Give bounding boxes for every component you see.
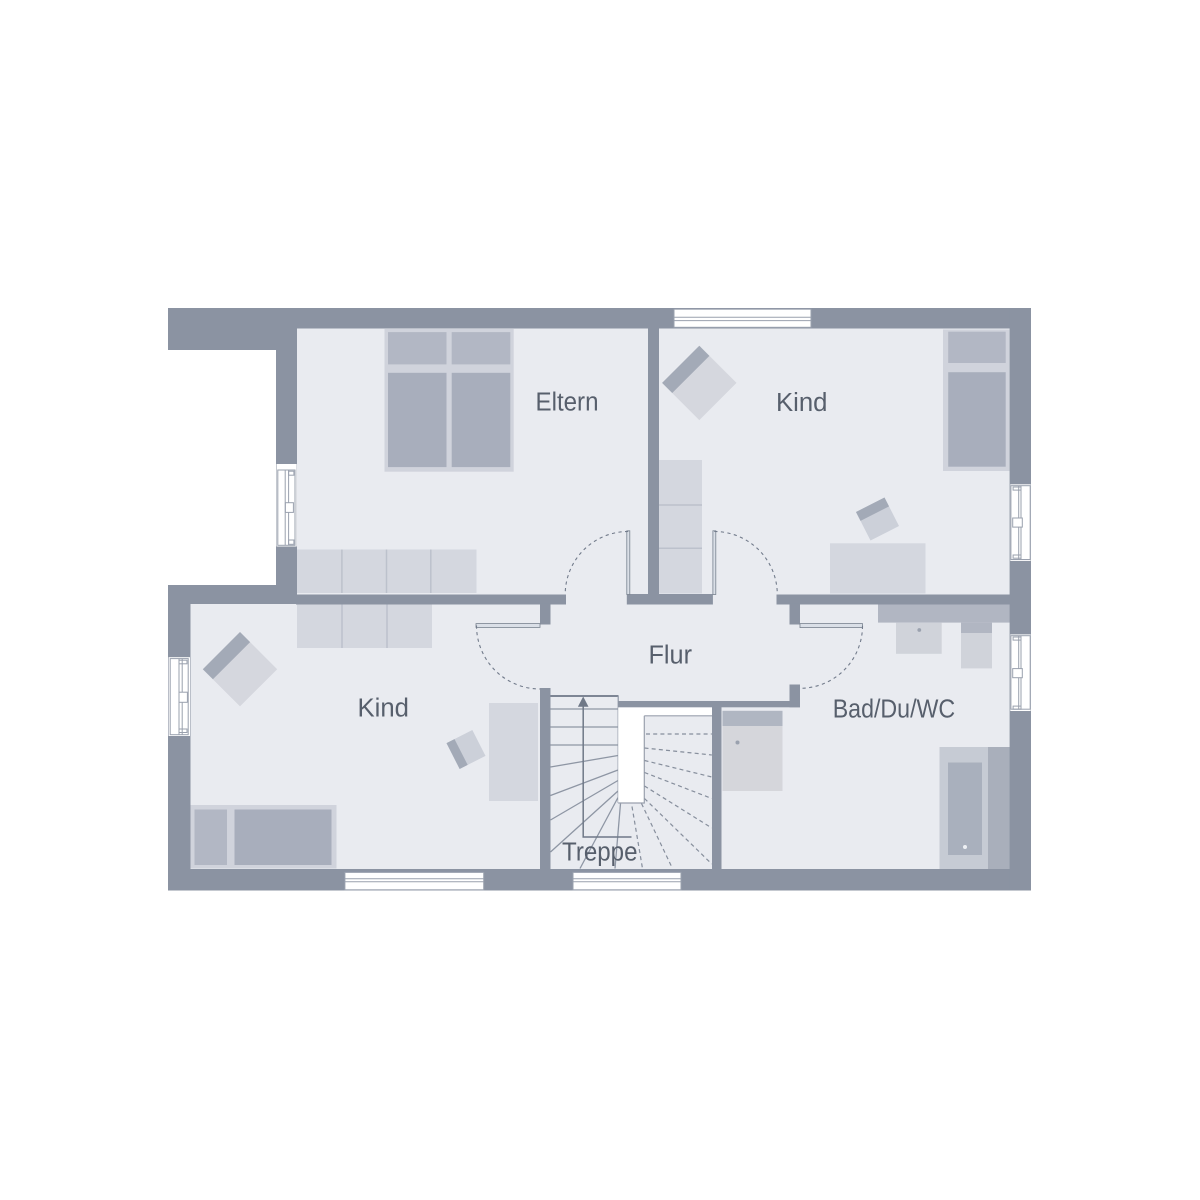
svg-text:Kind: Kind: [358, 695, 410, 723]
svg-text:Eltern: Eltern: [536, 389, 599, 417]
svg-text:Flur: Flur: [649, 642, 693, 670]
svg-text:Treppe: Treppe: [562, 839, 638, 867]
svg-text:Kind: Kind: [776, 389, 828, 417]
svg-text:Bad/Du/WC: Bad/Du/WC: [833, 696, 956, 724]
